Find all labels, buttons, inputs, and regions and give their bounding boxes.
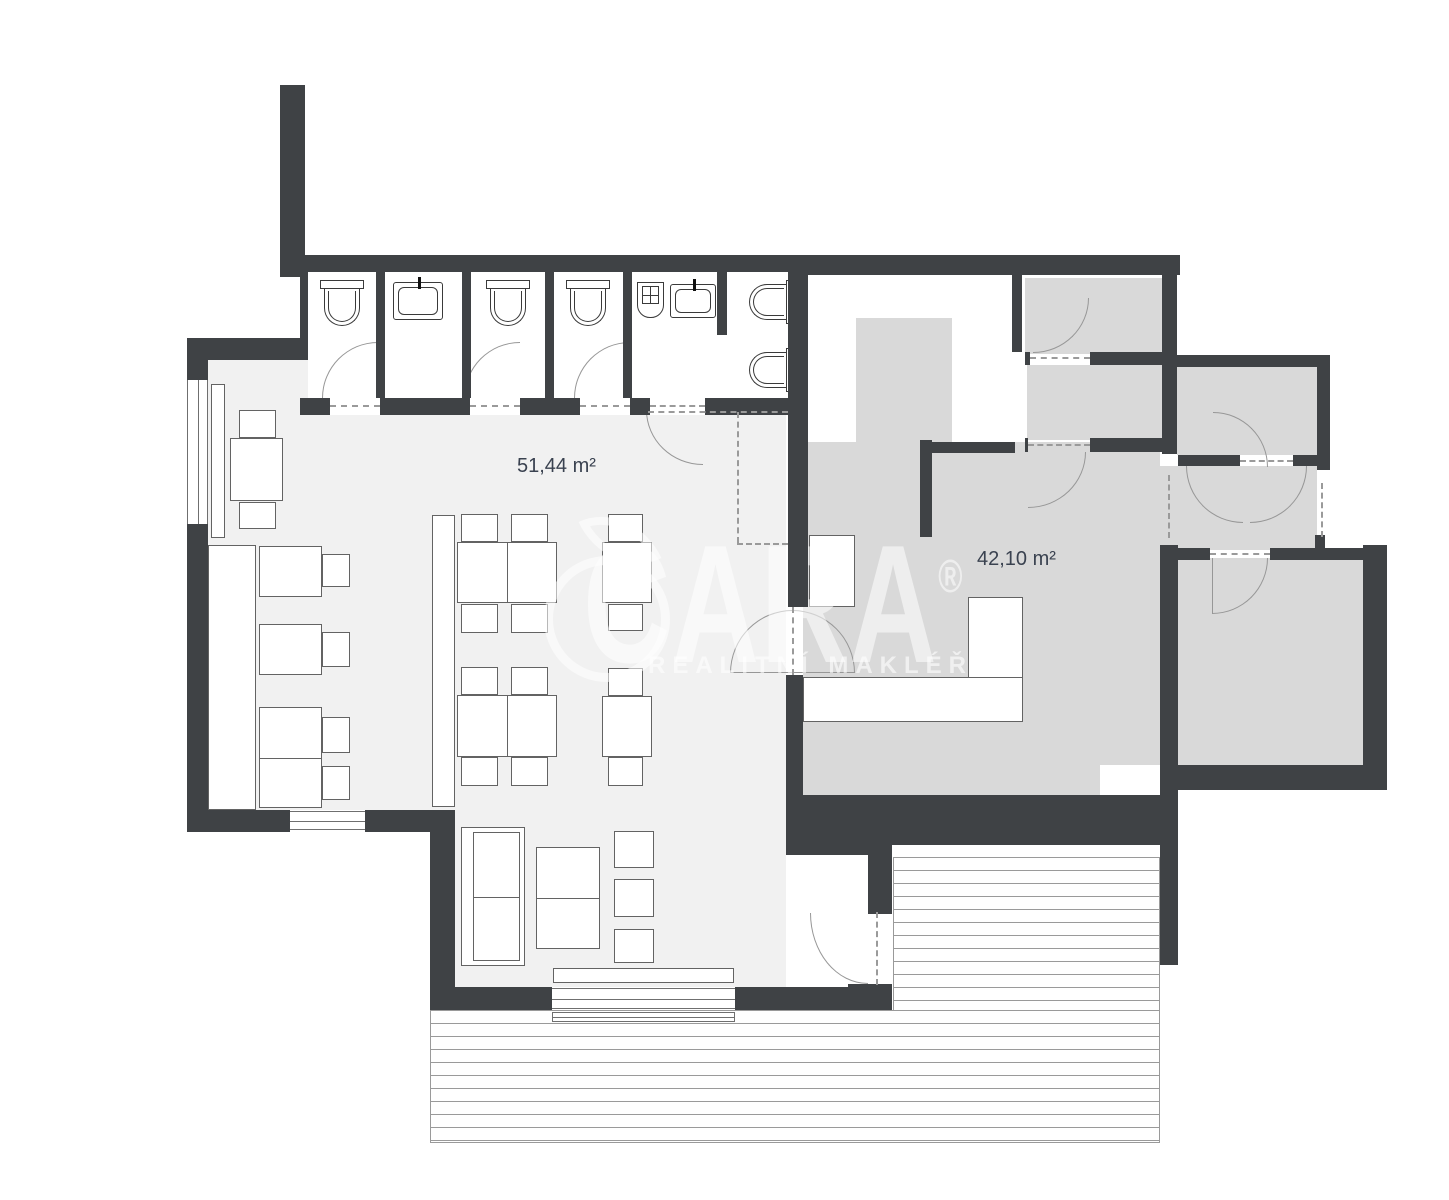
room-east-2-floor <box>1178 558 1363 765</box>
wall <box>848 984 892 1010</box>
wall <box>1293 455 1317 466</box>
chair <box>461 604 498 633</box>
opening-dashline <box>330 405 380 407</box>
wall <box>187 524 208 832</box>
wall <box>187 810 290 832</box>
chair <box>239 410 276 438</box>
stool <box>614 929 654 963</box>
wall <box>798 795 1178 845</box>
kitchen-counter <box>803 677 1023 722</box>
wall <box>630 398 650 415</box>
area-label-restaurant: 51,44 m² <box>517 455 596 478</box>
dining-table-double <box>457 542 557 603</box>
toilet-tank <box>566 280 610 289</box>
dining-table <box>259 546 322 597</box>
opening-dashline <box>1030 357 1090 359</box>
chair <box>511 604 548 633</box>
wall <box>1012 262 1022 352</box>
wall <box>430 810 455 1010</box>
wall <box>920 440 932 537</box>
wall <box>300 255 808 272</box>
window-sill <box>552 1012 735 1022</box>
door-leaf <box>1212 558 1213 614</box>
stool <box>614 879 654 917</box>
chair <box>511 757 548 786</box>
opening-dashline <box>1321 483 1323 537</box>
window <box>550 988 737 1009</box>
chair <box>322 632 350 667</box>
urinal-icon <box>637 282 664 318</box>
sofa <box>461 827 525 966</box>
chair <box>511 667 548 695</box>
chair <box>322 766 350 800</box>
coffee-table <box>536 847 600 949</box>
sideboard <box>553 968 734 983</box>
chair <box>461 757 498 786</box>
chair <box>322 554 350 587</box>
opening-dashline <box>737 543 788 545</box>
toilet-icon <box>486 280 530 326</box>
wall <box>430 987 552 1010</box>
chair <box>461 514 498 542</box>
toilet-icon <box>320 280 364 326</box>
opening-dashline <box>1210 553 1270 555</box>
opening-dashline <box>876 912 878 985</box>
toilet-bowl <box>749 352 786 388</box>
opening-dashline <box>1028 444 1090 446</box>
door-arc <box>810 913 868 984</box>
toilet-tank <box>320 280 364 289</box>
opening-dashline <box>580 405 630 407</box>
floor-plan: CARA® REALITNÍ MAKLÉŘI 51,44 m² 42,10 m² <box>0 0 1449 1200</box>
wall <box>1178 455 1240 466</box>
deck-lower <box>430 1010 1160 1143</box>
wall <box>300 398 330 415</box>
pass-window-counter <box>809 535 855 607</box>
opening-dashline <box>650 405 705 407</box>
wall <box>376 272 385 398</box>
chair <box>239 502 276 529</box>
room-small-2-floor <box>1027 365 1162 440</box>
room-divider <box>432 515 455 807</box>
dining-table <box>602 542 652 603</box>
toilet-bowl <box>570 289 606 326</box>
wall <box>1160 765 1387 790</box>
chair <box>608 514 643 542</box>
chair <box>322 717 350 753</box>
area-label-kitchen: 42,10 m² <box>977 548 1056 571</box>
wall <box>735 987 848 1010</box>
wall <box>795 255 1180 275</box>
sink-icon <box>670 284 716 318</box>
wall <box>1090 438 1162 452</box>
wall <box>1160 545 1178 767</box>
dining-table <box>259 707 322 808</box>
opening-dashline <box>648 411 788 413</box>
wall <box>1160 765 1178 965</box>
wall <box>187 338 208 380</box>
wall <box>1090 352 1162 365</box>
wall <box>545 272 554 398</box>
wall <box>462 272 471 398</box>
wall <box>717 272 727 335</box>
toilet-bowl <box>749 284 786 320</box>
wall <box>1170 355 1330 367</box>
opening-dashline <box>470 405 520 407</box>
dining-table <box>602 696 652 757</box>
wall <box>623 272 632 398</box>
chair <box>511 514 548 542</box>
toilet-bowl <box>324 289 360 326</box>
wall <box>280 85 305 277</box>
opening-dashline <box>1240 460 1293 462</box>
wall <box>1317 355 1330 470</box>
window <box>187 378 208 526</box>
chair <box>461 667 498 695</box>
chair <box>608 604 643 631</box>
wall <box>365 810 433 832</box>
chair <box>608 668 643 696</box>
kitchen-floor <box>856 318 952 455</box>
opening-dashline <box>737 412 739 543</box>
toilet-icon <box>566 280 610 326</box>
toilet-tank <box>486 280 530 289</box>
wall-shelf <box>211 384 225 538</box>
wall <box>380 398 470 415</box>
kitchen-floor-notch <box>1100 765 1160 795</box>
wall <box>1363 545 1387 790</box>
dining-table <box>230 438 283 501</box>
dining-table <box>259 624 322 675</box>
toilet-bowl <box>490 289 526 326</box>
window <box>288 811 367 830</box>
opening-dashline <box>1168 475 1170 538</box>
stool <box>614 831 654 868</box>
opening-dashline <box>792 607 794 675</box>
kitchen-counter <box>968 597 1023 679</box>
wall <box>520 398 580 415</box>
wall <box>932 442 1015 453</box>
wall <box>788 255 808 607</box>
deck-upper <box>893 857 1160 1012</box>
dining-table-double <box>457 695 557 757</box>
bench <box>208 545 256 810</box>
sink-icon <box>393 282 443 320</box>
chair <box>608 757 643 786</box>
